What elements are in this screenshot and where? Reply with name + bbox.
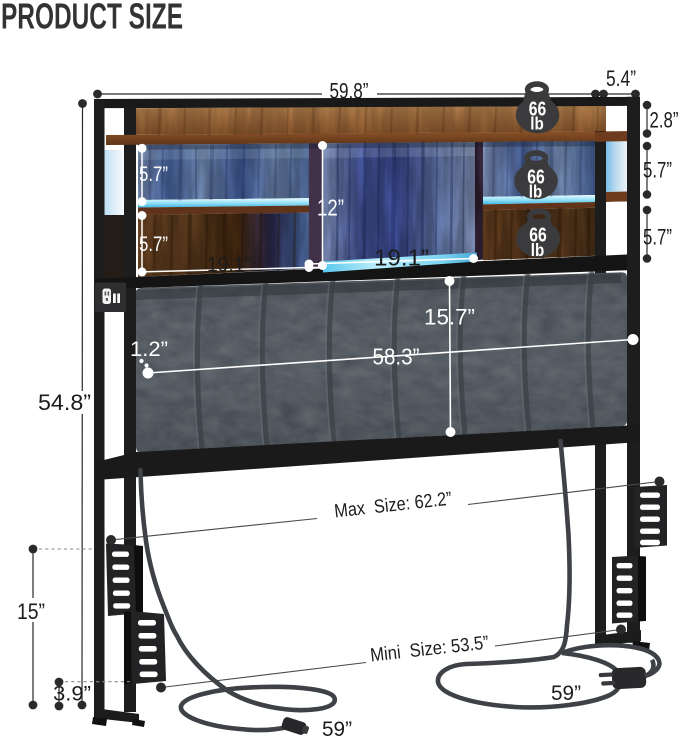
- svg-text:59”: 59”: [322, 717, 352, 740]
- svg-text:59”: 59”: [551, 681, 581, 705]
- svg-text:5.7”: 5.7”: [643, 158, 672, 183]
- svg-text:54.8”: 54.8”: [38, 390, 91, 415]
- svg-text:12”: 12”: [317, 195, 344, 221]
- svg-text:lb: lb: [531, 240, 545, 260]
- svg-text:3.9”: 3.9”: [53, 682, 91, 706]
- svg-text:58.3”: 58.3”: [373, 344, 420, 370]
- svg-text:5.7”: 5.7”: [643, 225, 672, 250]
- svg-text:lb: lb: [530, 114, 544, 134]
- svg-text:lb: lb: [529, 182, 543, 202]
- svg-text:5.7”: 5.7”: [139, 232, 168, 256]
- svg-text:5.4”: 5.4”: [606, 66, 636, 91]
- svg-text:15”: 15”: [17, 599, 45, 624]
- svg-text:PRODUCT SIZE: PRODUCT SIZE: [1, 0, 183, 37]
- svg-text:19.1”: 19.1”: [207, 253, 251, 277]
- svg-text:5.7”: 5.7”: [139, 162, 168, 186]
- svg-text:1.2”: 1.2”: [130, 337, 168, 361]
- svg-text:15.7”: 15.7”: [424, 305, 475, 330]
- svg-text:19.1”: 19.1”: [374, 245, 429, 271]
- svg-text:2.8”: 2.8”: [650, 108, 679, 133]
